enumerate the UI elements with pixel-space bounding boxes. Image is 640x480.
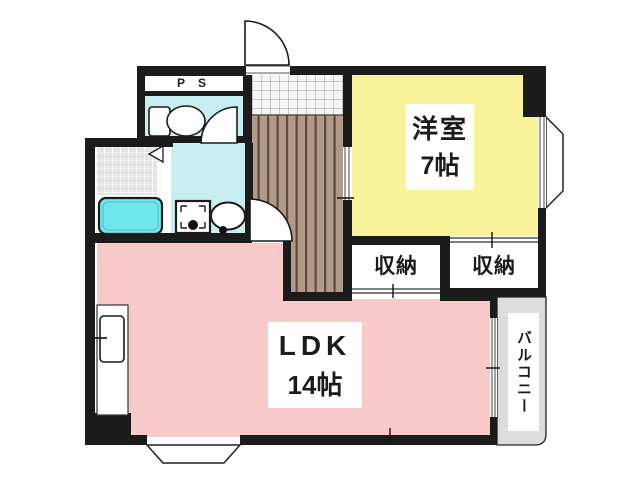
wall-corner-block [85,413,131,445]
wall [538,208,546,245]
wall [240,435,497,445]
storage-right-label: 収納 [450,247,538,287]
hallway-floor-lower [291,240,343,294]
kitchen-sink [100,316,124,362]
wall [288,66,546,75]
wall [85,138,173,147]
wall [440,292,497,301]
bathroom-tile-floor [97,147,157,195]
pipe-space-label: P S [145,75,243,92]
wall [243,66,252,143]
ldk-name: LDK [279,326,352,366]
western-room-size: 7帖 [421,148,460,184]
floor-plan-drawing [0,0,640,480]
wall [137,66,145,143]
wall [85,138,95,445]
wall [440,236,450,294]
western-room-label: 洋室 7帖 [406,104,474,190]
basin-base [219,226,227,234]
ldk-size: 14帖 [288,366,343,404]
washing-machine-pan [176,201,210,233]
wall [538,236,546,297]
wall [490,292,497,318]
balcony-label: バルコニー [508,313,539,431]
wall [538,66,546,117]
bathtub [99,198,162,234]
wall [283,240,291,301]
floor-plan: P S 洋室 7帖 LDK 14帖 収納 収納 バルコニー [0,0,640,480]
western-room-door-opening [343,147,352,200]
wall [343,236,450,245]
wall [343,236,352,294]
toilet-bowl [167,106,205,136]
wall [343,66,352,147]
basin [211,203,245,230]
bay-window-opening [538,117,546,208]
toilet [149,106,205,136]
drain [188,220,198,230]
western-room-name: 洋室 [412,110,468,148]
kitchen-counter [92,305,128,415]
wall [283,292,352,301]
ldk-label: LDK 14帖 [268,322,362,408]
storage-left-label: 収納 [352,247,440,287]
bay-window [546,117,563,208]
ldk-bay-window [147,445,240,463]
